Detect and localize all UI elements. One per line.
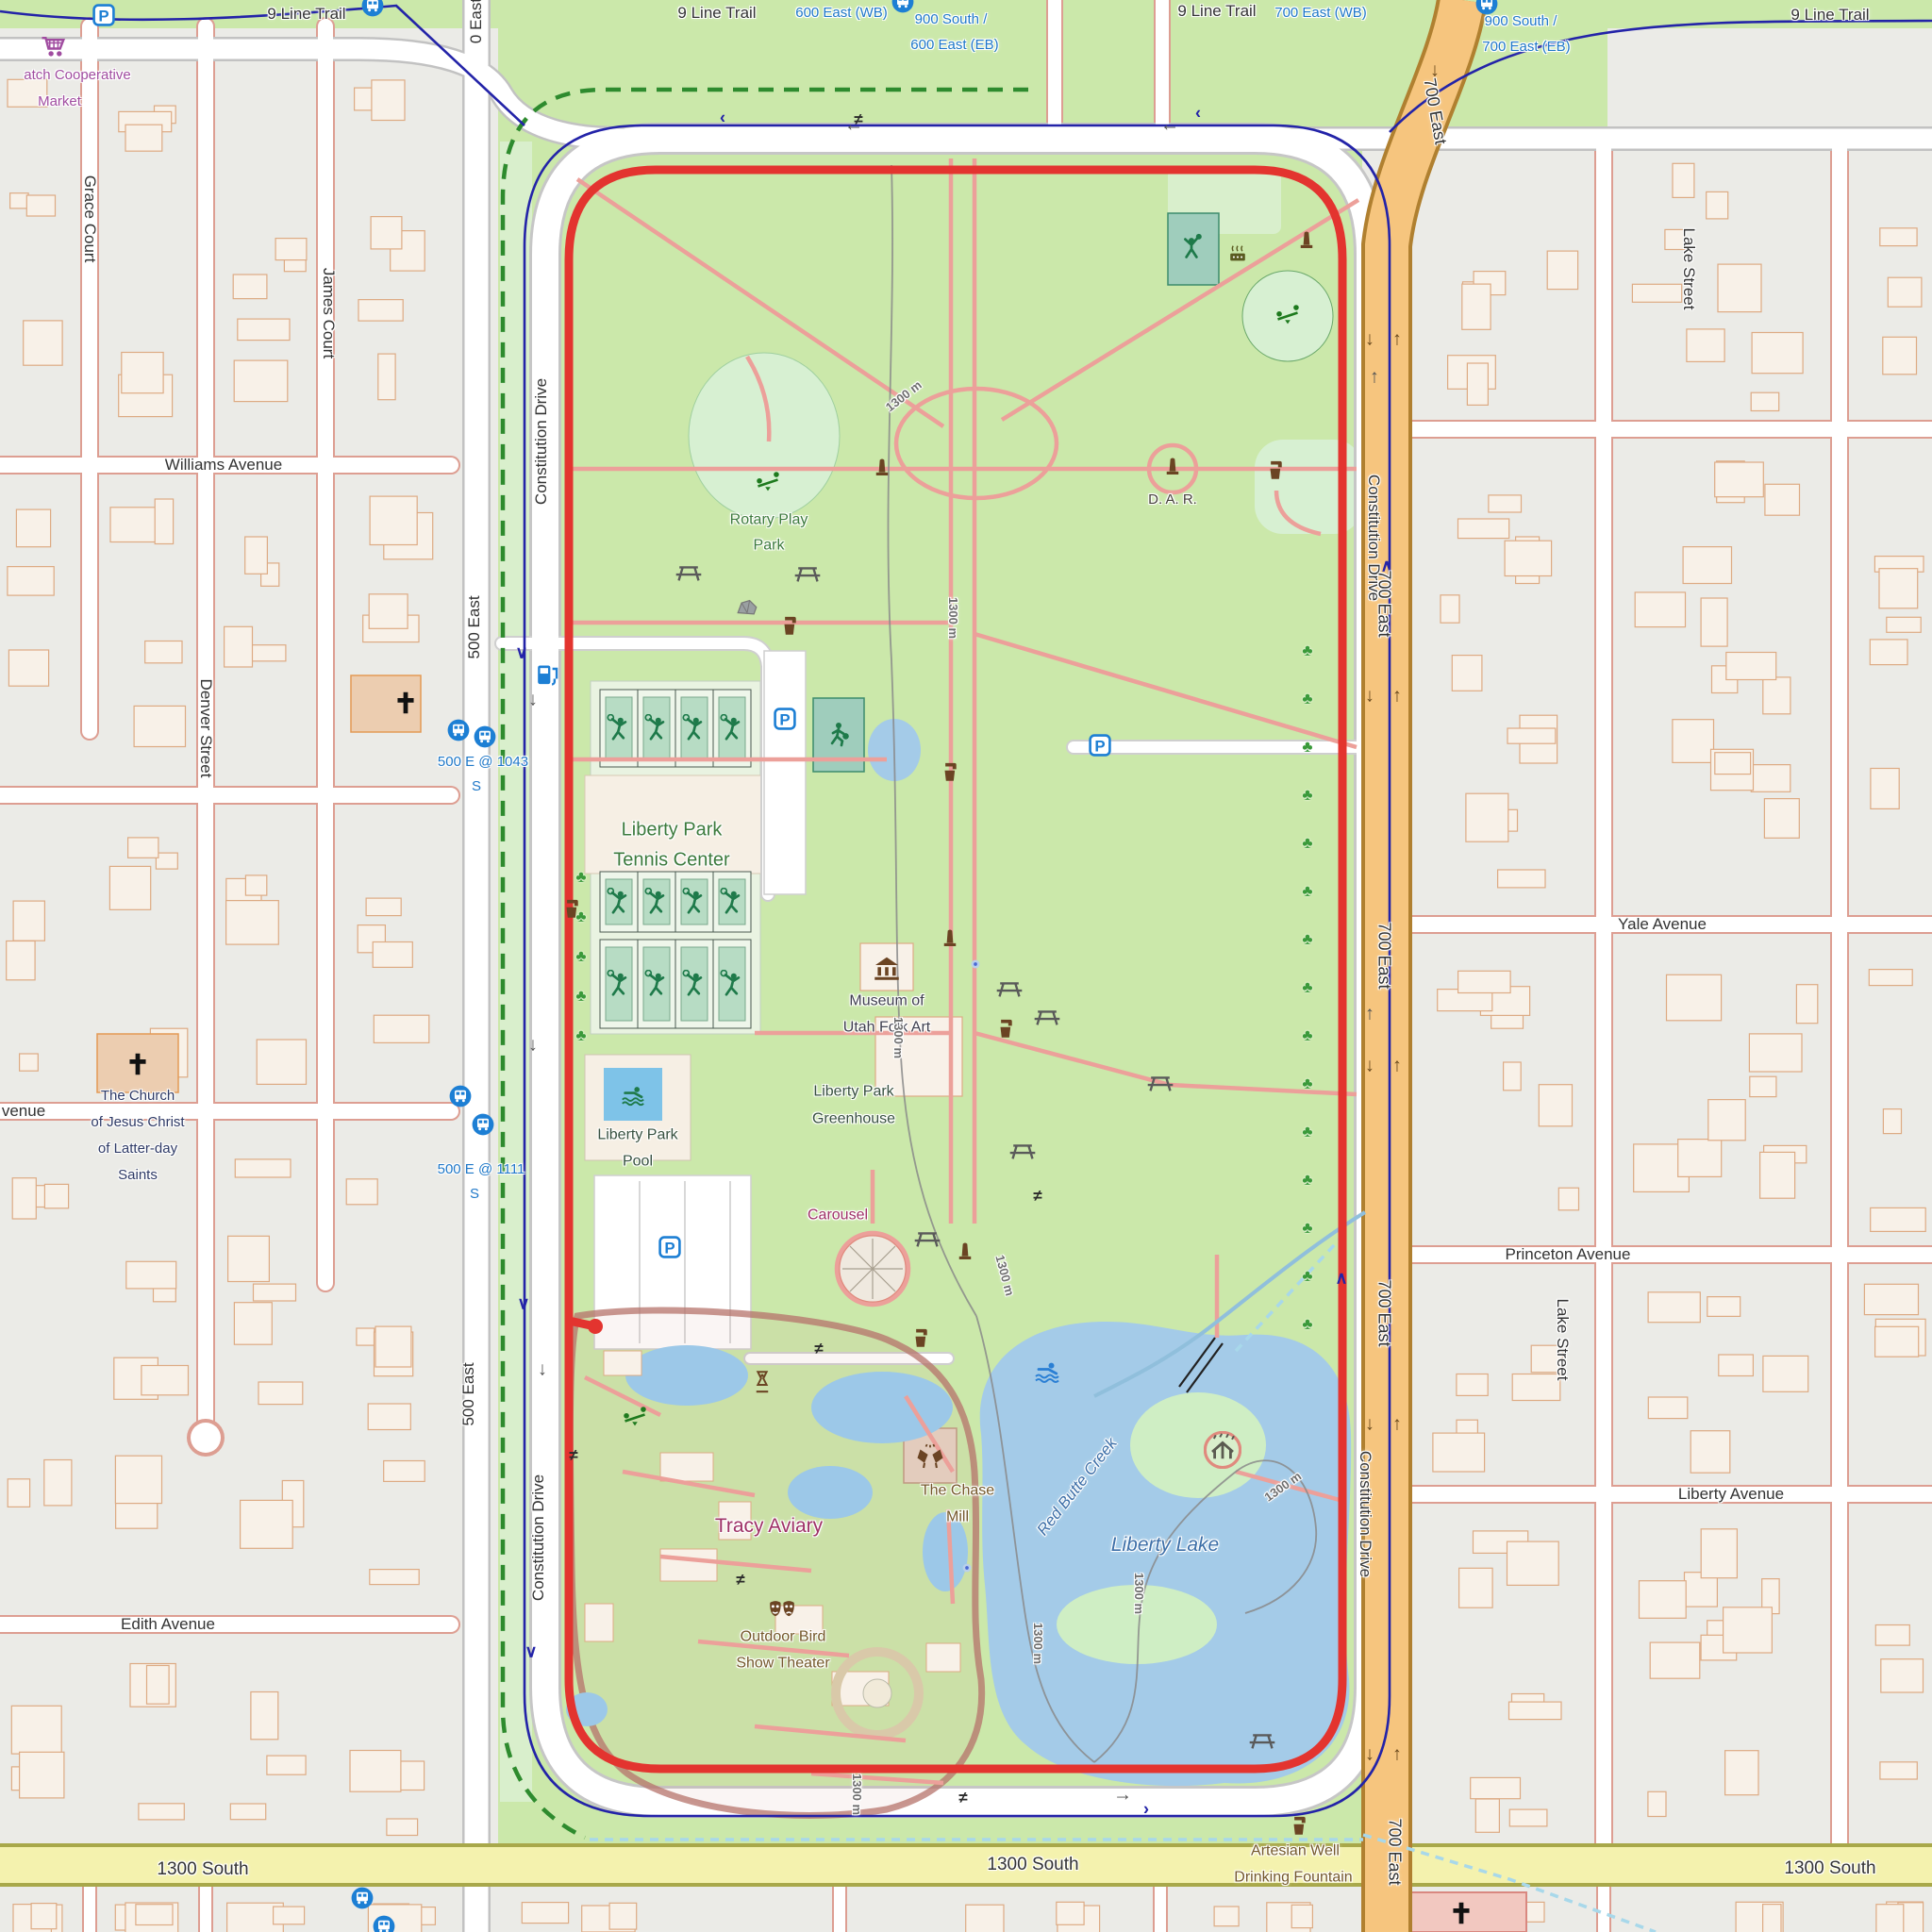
- picnic-table-icon: [1034, 1004, 1060, 1030]
- tree-icon: ♣: [1302, 738, 1312, 757]
- transit-label: 600 East (EB): [910, 38, 998, 53]
- picnic-table-icon: [996, 975, 1023, 1002]
- monument-icon: [938, 928, 962, 953]
- tree-icon: ♣: [1302, 1026, 1312, 1045]
- water-label: Liberty Lake: [1111, 1535, 1219, 1556]
- street-label: 700 East: [1375, 1279, 1393, 1346]
- museum-icon: [873, 954, 901, 982]
- picnic-table-icon: [1249, 1727, 1275, 1754]
- bus-icon: [447, 719, 470, 741]
- bike-route-arrow: ∧: [1335, 1269, 1347, 1289]
- park-name-label: Tennis Center: [613, 851, 729, 871]
- tree-icon: ♣: [1302, 930, 1312, 949]
- lane-arrow: ↓: [1365, 686, 1374, 708]
- playground-icon: [622, 1405, 648, 1431]
- fountain-dot-icon: [959, 1560, 974, 1575]
- oneway-arrow: ←: [1160, 115, 1179, 137]
- distance-marker-label: 1300 m: [946, 597, 959, 639]
- street-label: 0 East: [468, 0, 485, 43]
- tennis-player-icon: [718, 888, 746, 916]
- transit-label: 900 South /: [915, 12, 988, 27]
- monument-icon: [1160, 457, 1185, 481]
- bus-icon: [373, 1915, 395, 1932]
- theater-masks-icon: [768, 1597, 796, 1625]
- street-label: 700 East: [1386, 1818, 1404, 1885]
- church-label: of Jesus Christ: [91, 1115, 184, 1130]
- drinking-fountain-icon: [1288, 1813, 1312, 1838]
- lane-arrow: ↑: [1392, 1744, 1402, 1766]
- parking-icon: [658, 1235, 682, 1259]
- street-label: Denver Street: [197, 679, 214, 778]
- bike-route-arrow: ∨: [515, 643, 527, 663]
- tree-icon: ♣: [575, 1026, 586, 1045]
- poi-label: Greenhouse: [812, 1112, 895, 1128]
- gate-marker: ≠: [569, 1446, 577, 1465]
- parking-icon: [1088, 733, 1112, 758]
- transit-label: 700 East (WB): [1274, 6, 1367, 21]
- gate-marker: ≠: [854, 110, 862, 129]
- street-label: James Court: [320, 268, 337, 358]
- church-cross-icon: [392, 690, 419, 716]
- street-label: Liberty Avenue: [1678, 1486, 1784, 1503]
- distance-marker-label: 1300 m: [993, 1254, 1017, 1297]
- tree-icon: ♣: [1302, 1171, 1312, 1190]
- street-label: venue: [2, 1103, 45, 1120]
- transit-label: 500 E @ 1043: [438, 755, 528, 770]
- gate-marker: ≠: [814, 1340, 823, 1358]
- street-label: 1300 South: [157, 1860, 248, 1879]
- distance-marker-label: 1300 m: [1132, 1573, 1145, 1614]
- lane-arrow: ↓: [1365, 1414, 1374, 1436]
- shelter-icon: [1204, 1431, 1241, 1469]
- street-label: Williams Avenue: [165, 457, 282, 474]
- street-label: Edith Avenue: [121, 1616, 215, 1633]
- transit-label: 600 East (WB): [795, 6, 888, 21]
- street-label: 9 Line Trail: [1790, 7, 1869, 24]
- oneway-arrow: ↑: [1365, 1004, 1374, 1025]
- street-label: Yale Avenue: [1618, 916, 1707, 933]
- swimmer-icon: [620, 1081, 646, 1108]
- distance-marker-label: 1300 m: [891, 1017, 905, 1058]
- swimmer-blue-icon: [1033, 1357, 1061, 1385]
- drinking-fountain-icon: [1264, 458, 1289, 482]
- tennis-player-icon: [718, 714, 746, 742]
- bike-route-arrow: ‹: [720, 108, 725, 128]
- shopping-cart-icon: [41, 33, 69, 61]
- church-cross-icon: [125, 1051, 151, 1077]
- oneway-arrow: ↑: [1370, 367, 1379, 389]
- street-label: 1300 South: [987, 1856, 1078, 1874]
- poi-label: Artesian Well: [1251, 1844, 1340, 1860]
- tree-icon: ♣: [1302, 690, 1312, 708]
- mill-icon: [916, 1442, 944, 1471]
- street-label: Constitution Drive: [530, 1474, 547, 1601]
- tennis-player-icon: [642, 970, 671, 998]
- shop-label: atch Cooperative: [24, 68, 130, 83]
- street-label: 9 Line Trail: [677, 5, 756, 22]
- poi-label: Liberty Park: [813, 1085, 893, 1101]
- bus-icon: [351, 1887, 374, 1909]
- water-label: Red Butte Creek: [1034, 1435, 1120, 1539]
- shop-label: Market: [38, 94, 81, 109]
- poi-label: Outdoor Bird: [741, 1630, 826, 1646]
- tree-icon: ♣: [1302, 786, 1312, 805]
- poi-label: Drinking Fountain: [1234, 1871, 1352, 1887]
- tree-icon: ♣: [1302, 978, 1312, 997]
- parking-icon: [92, 3, 116, 27]
- lane-arrow: ↑: [1392, 1414, 1402, 1436]
- lane-arrow: ↓: [1365, 1744, 1374, 1766]
- rock-icon: [735, 596, 759, 621]
- tree-icon: ♣: [1302, 1267, 1312, 1286]
- fountain-dot-icon: [968, 957, 983, 972]
- drinking-fountain-icon: [909, 1325, 934, 1350]
- distance-marker-label: 1300 m: [1262, 1470, 1304, 1504]
- gate-marker: ≠: [1033, 1187, 1041, 1206]
- playground-icon: [1274, 303, 1301, 329]
- transit-label: 500 E @ 1111: [438, 1162, 525, 1177]
- map-viewport[interactable]: ♣♣♣♣♣♣♣♣♣♣♣♣♣♣♣♣♣♣♣♣↓↓↓←←↑↑→↓↑↓↑↓↑↓↑↓↑↓‹…: [0, 0, 1932, 1932]
- poi-label: Carousel: [808, 1208, 868, 1224]
- park-name-label: Liberty Park: [622, 821, 723, 841]
- poi-label: D. A. R.: [1148, 492, 1197, 508]
- street-label: 700 East: [1375, 570, 1393, 637]
- street-label: 700 East: [1375, 922, 1393, 989]
- bike-route-arrow: ›: [1143, 1800, 1149, 1820]
- street-label: Lake Street: [1680, 228, 1697, 310]
- tree-icon: ♣: [575, 868, 586, 887]
- street-label: 500 East: [460, 1362, 477, 1425]
- poi-label: Show Theater: [736, 1657, 829, 1673]
- bike-route-arrow: ∨: [517, 1294, 529, 1314]
- bike-route-arrow: ∨: [525, 1642, 537, 1662]
- bbq-grill-icon: [1226, 241, 1249, 264]
- tennis-player-icon: [642, 714, 671, 742]
- tree-icon: ♣: [1302, 834, 1312, 853]
- gate-marker: ≠: [958, 1789, 967, 1807]
- lane-arrow: ↓: [1365, 329, 1374, 351]
- bike-route-arrow: ‹: [1195, 104, 1201, 124]
- volleyball-player-icon: [1177, 233, 1206, 261]
- lane-arrow: ↓: [1365, 1056, 1374, 1077]
- tree-icon: ♣: [1302, 1219, 1312, 1238]
- poi-label: The Chase: [921, 1484, 994, 1500]
- poi-label: Tracy Aviary: [715, 1516, 823, 1537]
- memorial-hourglass-icon: [750, 1369, 774, 1393]
- bus-icon: [472, 1113, 494, 1136]
- picnic-table-icon: [1009, 1138, 1036, 1164]
- monument-icon: [870, 458, 894, 482]
- transit-label: 900 South /: [1485, 14, 1557, 29]
- street-label: 700 East: [1421, 76, 1450, 145]
- drinking-fountain-icon: [994, 1016, 1019, 1041]
- tree-icon: ♣: [1302, 1074, 1312, 1093]
- tennis-player-icon: [605, 970, 633, 998]
- poi-label: Mill: [946, 1510, 969, 1526]
- church-label: of Latter-day: [98, 1141, 177, 1157]
- distance-marker-label: 1300 m: [883, 378, 924, 414]
- lane-arrow: ↑: [1392, 1056, 1402, 1077]
- tennis-player-icon: [605, 714, 633, 742]
- transit-label: 700 East (EB): [1482, 40, 1570, 55]
- bus-icon: [361, 0, 384, 17]
- street-label: 1300 South: [1784, 1859, 1875, 1878]
- monument-icon: [953, 1241, 977, 1266]
- oneway-arrow: ↓: [528, 1035, 538, 1057]
- poi-label: Utah Folk Art: [843, 1021, 930, 1037]
- tennis-player-icon: [642, 888, 671, 916]
- oneway-arrow: ↓: [528, 690, 538, 711]
- poi-label: Liberty Park: [597, 1128, 677, 1144]
- street-label: 9 Line Trail: [1177, 3, 1256, 20]
- gate-marker: ≠: [736, 1571, 744, 1590]
- tree-icon: ♣: [1302, 1315, 1312, 1334]
- distance-marker-label: 1300 m: [850, 1774, 863, 1815]
- oneway-arrow: ↓: [538, 1359, 547, 1381]
- tennis-player-icon: [605, 888, 633, 916]
- drinking-fountain-icon: [560, 896, 585, 921]
- bus-icon: [449, 1085, 472, 1108]
- street-label: Grace Court: [81, 175, 98, 263]
- transit-label: S: [470, 1187, 479, 1202]
- tree-icon: ♣: [1302, 641, 1312, 660]
- street-label: 9 Line Trail: [267, 6, 345, 23]
- picnic-table-icon: [794, 560, 821, 587]
- tennis-player-icon: [680, 888, 708, 916]
- lane-arrow: ↑: [1392, 329, 1402, 351]
- tennis-player-icon: [718, 970, 746, 998]
- map-overlay-layer: ♣♣♣♣♣♣♣♣♣♣♣♣♣♣♣♣♣♣♣♣↓↓↓←←↑↑→↓↑↓↑↓↑↓↑↓↑↓‹…: [0, 0, 1932, 1932]
- church-cross-icon: [1448, 1900, 1474, 1926]
- street-label: Princeton Avenue: [1506, 1246, 1631, 1263]
- tennis-player-icon: [680, 714, 708, 742]
- tree-icon: ♣: [1302, 1123, 1312, 1141]
- park-name-label: Park: [754, 539, 785, 555]
- tree-icon: ♣: [575, 947, 586, 966]
- street-label: Constitution Drive: [1357, 1451, 1374, 1577]
- tennis-player-icon: [680, 970, 708, 998]
- transit-label: S: [472, 779, 481, 794]
- tree-icon: ♣: [575, 987, 586, 1006]
- drinking-fountain-icon: [939, 759, 963, 784]
- tree-icon: ♣: [1302, 882, 1312, 901]
- bus-icon: [474, 725, 496, 748]
- street-label: Constitution Drive: [533, 378, 550, 505]
- basketball-player-icon: [824, 720, 853, 748]
- oneway-arrow: →: [1113, 1785, 1132, 1807]
- church-label: Saints: [118, 1168, 158, 1183]
- picnic-table-icon: [914, 1225, 941, 1252]
- park-name-label: Rotary Play: [730, 513, 808, 529]
- poi-label: Pool: [623, 1155, 653, 1171]
- monument-icon: [1294, 230, 1319, 255]
- picnic-table-icon: [1147, 1070, 1174, 1096]
- picnic-table-icon: [675, 559, 702, 586]
- poi-label: Museum of: [849, 994, 924, 1010]
- drinking-fountain-icon: [778, 613, 803, 638]
- ev-charger-icon: [534, 662, 560, 689]
- lane-arrow: ↑: [1392, 686, 1402, 708]
- distance-marker-label: 1300 m: [1031, 1623, 1044, 1664]
- street-label: Lake Street: [1554, 1299, 1571, 1381]
- parking-icon: [773, 707, 797, 731]
- playground-icon: [755, 470, 781, 496]
- bus-icon: [891, 0, 914, 13]
- church-label: The Church: [101, 1089, 175, 1104]
- street-label: 500 East: [466, 595, 483, 658]
